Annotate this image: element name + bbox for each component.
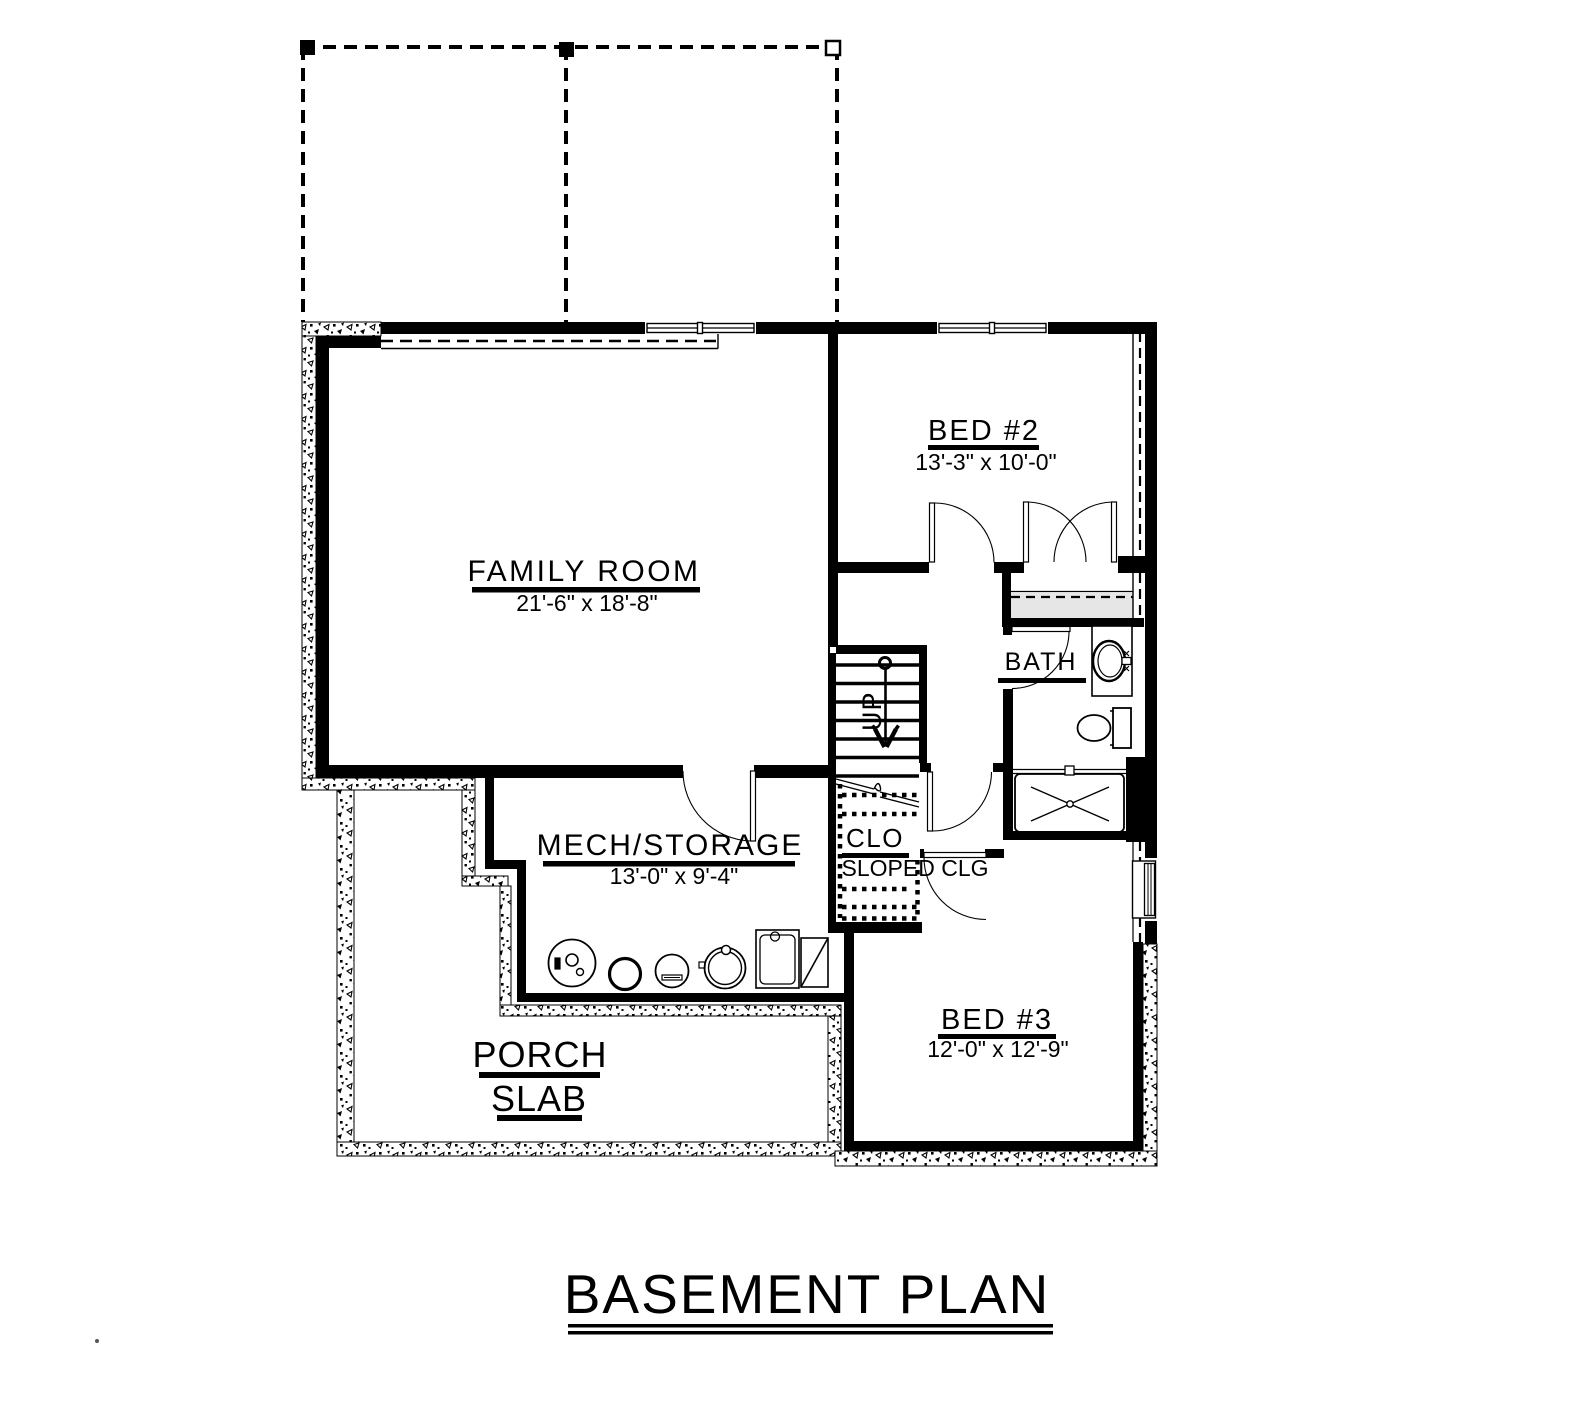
svg-text:PORCH: PORCH	[472, 1034, 607, 1075]
svg-text:21'-6" x 18'-8": 21'-6" x 18'-8"	[516, 590, 657, 616]
svg-text:MECH/STORAGE: MECH/STORAGE	[537, 829, 804, 862]
svg-text:BED #3: BED #3	[941, 1004, 1053, 1036]
svg-text:BED #2: BED #2	[928, 415, 1040, 447]
svg-text:12'-0" x 12'-9": 12'-0" x 12'-9"	[927, 1036, 1068, 1062]
svg-text:13'-0" x 9'-4": 13'-0" x 9'-4"	[610, 863, 739, 889]
svg-text:FAMILY ROOM: FAMILY ROOM	[467, 555, 700, 588]
svg-text:UP: UP	[857, 691, 887, 731]
svg-text:SLAB: SLAB	[491, 1078, 587, 1119]
svg-text:SLOPED CLG: SLOPED CLG	[842, 855, 989, 881]
svg-text:BATH: BATH	[1005, 648, 1078, 676]
svg-text:BASEMENT PLAN: BASEMENT PLAN	[564, 1263, 1051, 1325]
svg-text:CLO: CLO	[846, 823, 904, 853]
svg-text:13'-3" x 10'-0": 13'-3" x 10'-0"	[915, 449, 1056, 475]
